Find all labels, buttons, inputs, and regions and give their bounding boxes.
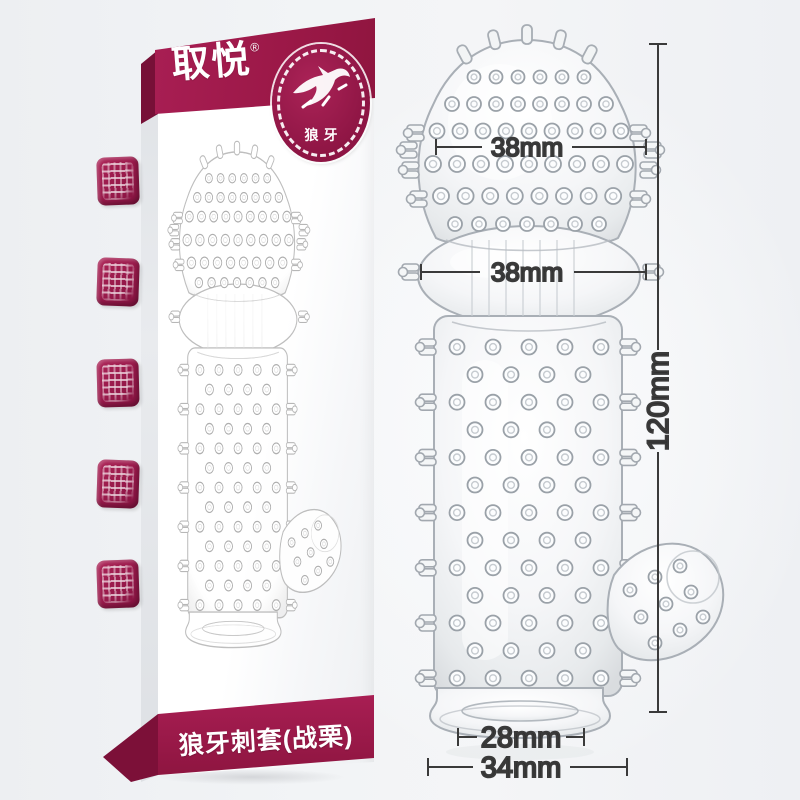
nub-studs [624, 560, 710, 650]
dimension-label-head: 38mm [491, 132, 563, 162]
product-name-label: 狼牙刺套(战栗) [157, 715, 375, 764]
seal-stamp-icon [96, 559, 140, 608]
seal-stamp-icon [96, 358, 139, 407]
seal-stamp-icon [96, 459, 140, 508]
registered-mark: ® [250, 40, 262, 55]
product-reflection [446, 744, 594, 760]
wolf-badge: 狼牙 [272, 44, 370, 162]
dimension-base-width: 34mm [428, 752, 627, 784]
dimension-label-length: 120mm [642, 351, 675, 451]
top-spikes [456, 25, 599, 65]
badge-label: 狼牙 [272, 125, 370, 145]
dimension-label-opening: 28mm [481, 722, 562, 754]
bottom-banner-side [103, 712, 158, 782]
wolf-icon [289, 59, 353, 115]
dimension-label-bulb: 38mm [491, 257, 563, 287]
dimension-total-length: 120mm [642, 44, 675, 712]
product-illustration [397, 25, 724, 738]
head-studs [425, 71, 633, 232]
brand-logo: 取悦® [169, 27, 264, 89]
bulb-ribs [472, 240, 574, 316]
product-showcase: 取悦® 狼牙 狼牙刺套(战栗) [0, 0, 800, 800]
box-side-face [141, 48, 158, 782]
side-nub [608, 544, 724, 661]
dimension-label-base: 34mm [481, 752, 562, 784]
dimension-head-width: 38mm [436, 132, 646, 162]
seal-stamp-icon [96, 257, 140, 306]
brand-name: 取悦 [170, 39, 253, 87]
seal-stamp-icon [96, 156, 140, 205]
dimension-bulb-width: 38mm [421, 257, 646, 287]
dimension-opening-width: 28mm [458, 722, 584, 754]
base-rim [430, 688, 610, 738]
shaft-studs [416, 339, 641, 686]
side-bumps [397, 125, 665, 280]
